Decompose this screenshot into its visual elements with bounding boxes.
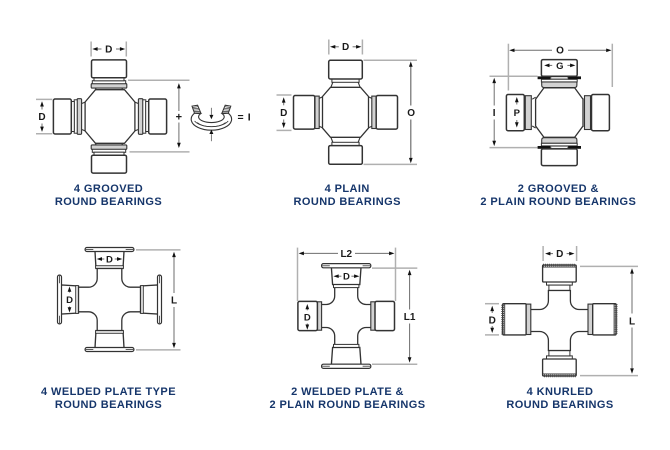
svg-text:D: D — [280, 108, 287, 119]
svg-text:D: D — [304, 312, 311, 323]
svg-text:D: D — [105, 44, 112, 55]
svg-text:D: D — [556, 249, 563, 260]
svg-text:D: D — [489, 315, 496, 326]
svg-text:G: G — [556, 61, 563, 72]
svg-text:L2: L2 — [340, 249, 352, 260]
svg-text:L: L — [629, 316, 635, 327]
svg-text:L1: L1 — [404, 312, 416, 323]
svg-text:O: O — [556, 46, 564, 57]
svg-text:I: I — [248, 112, 251, 124]
svg-text:P: P — [514, 108, 521, 119]
svg-text:D: D — [342, 42, 349, 53]
svg-text:D: D — [106, 254, 113, 265]
svg-text:=: = — [238, 112, 244, 124]
svg-text:L: L — [171, 296, 177, 307]
svg-text:D: D — [343, 272, 350, 283]
svg-text:+: + — [176, 111, 182, 123]
svg-text:O: O — [407, 108, 415, 119]
svg-text:D: D — [66, 295, 73, 306]
svg-text:I: I — [493, 108, 496, 119]
svg-text:D: D — [38, 112, 45, 123]
